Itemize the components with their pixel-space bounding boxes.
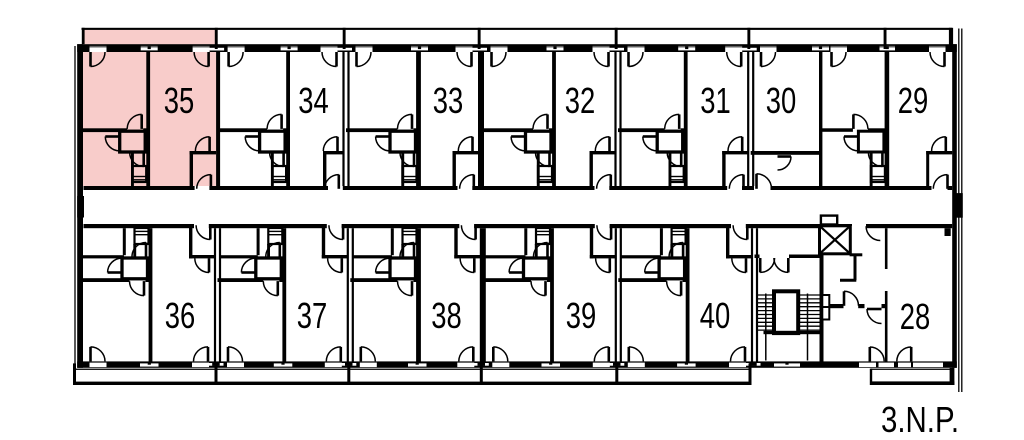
svg-text:29: 29: [898, 80, 929, 121]
svg-text:28: 28: [900, 296, 931, 337]
svg-text:38: 38: [431, 295, 462, 336]
svg-text:32: 32: [565, 80, 596, 121]
svg-text:35: 35: [164, 80, 195, 121]
svg-text:31: 31: [700, 80, 731, 121]
svg-text:30: 30: [766, 80, 797, 121]
svg-text:40: 40: [700, 295, 731, 336]
svg-text:36: 36: [165, 295, 196, 336]
svg-text:39: 39: [566, 295, 597, 336]
svg-text:3.N.P.: 3.N.P.: [881, 399, 959, 440]
svg-text:34: 34: [298, 80, 329, 121]
svg-text:37: 37: [297, 295, 328, 336]
svg-text:33: 33: [433, 80, 464, 121]
